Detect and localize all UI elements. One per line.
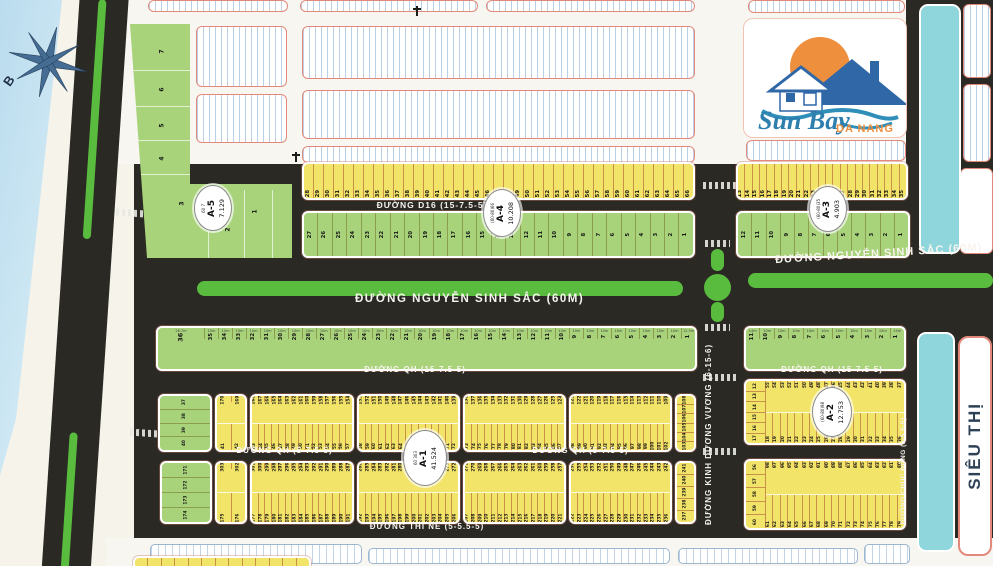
lot-cell: 33 [875, 413, 882, 444]
lot-cell: 32 [867, 413, 874, 444]
lot-number: 66 [804, 521, 808, 527]
strip-b2-4: 2562552542532522512502492482472462452442… [569, 461, 672, 524]
lot-cell: 62 [772, 495, 779, 528]
lot-cell: 251 [603, 463, 610, 469]
lot-number: 269 [479, 463, 483, 472]
lot-number: 20 [790, 190, 795, 197]
lot-cell: 199 [405, 493, 412, 522]
lot-cell: 57 [593, 164, 603, 198]
lot-number: 44 [466, 190, 471, 197]
block-c-val: 7.129 [218, 199, 226, 218]
lot-number: 31 [862, 436, 866, 442]
lot-number: 17 [768, 190, 773, 197]
lot-cell: 205 [445, 493, 452, 522]
lot-number: 290 [327, 463, 331, 472]
lot-number: 283 [380, 463, 384, 472]
lot-number: 3 [866, 335, 871, 339]
lot-number: 155 [340, 396, 344, 405]
lot-cell: 266 [497, 463, 504, 469]
lot-cell: 30 [323, 164, 333, 198]
lot-cell: 242 [663, 463, 670, 469]
lot-cell [135, 558, 147, 566]
lot-cell: 131 [511, 396, 518, 402]
lot-cell: 10m6 [817, 328, 831, 339]
crosswalk [705, 324, 730, 331]
lot-number: 141 [440, 396, 444, 405]
lot-number: 235 [658, 513, 662, 522]
lot-cell: 101 [657, 424, 664, 451]
lot-number: 22 [796, 436, 800, 442]
lot-number: 69 [826, 521, 830, 527]
lot-number: 29 [316, 190, 321, 197]
lot-cell: 10m14 [499, 328, 513, 339]
lot-cell: 219 [544, 493, 551, 522]
lot-number: 26 [323, 231, 328, 238]
lot-cell: 19 [419, 213, 433, 256]
strip-b1-3: 1381371361351341331321311301291281271261… [463, 394, 566, 452]
lot-cell: 10m7 [597, 328, 611, 339]
lot-number: 19 [783, 190, 788, 197]
block-c-id: A-4 [496, 205, 506, 222]
lot-cell: 230 [623, 493, 630, 522]
lot-cell: 63 [653, 164, 663, 198]
lot-number: 12 [742, 231, 747, 238]
roundabout [704, 274, 731, 301]
lot-number: 21 [395, 231, 400, 238]
lot-number: 187 [320, 513, 324, 522]
lot-number: 120 [592, 396, 596, 405]
lot-cell: 23 [802, 413, 809, 444]
lot-number: 35 [891, 436, 895, 442]
lot-number: 34 [893, 190, 898, 197]
lot-number: 273 [446, 463, 450, 472]
lot-number: 41 [222, 443, 226, 449]
block-circle-A-3: (60-80)35A-34.903 [809, 186, 847, 232]
lot-cell: 9 [563, 213, 577, 256]
lot-cell: 10m28 [302, 328, 316, 339]
lot-cell: 175 [217, 493, 231, 522]
power-pole-icon [295, 152, 297, 162]
lot-number: 57 [347, 443, 351, 449]
lot-cell [188, 558, 201, 566]
lot-number: 267 [492, 463, 496, 472]
lot-number: 20 [419, 333, 424, 340]
lot-number: 124 [559, 396, 563, 405]
lot-cell: 282 [385, 463, 392, 469]
lot-cell: 296 [285, 463, 292, 469]
lot-number: 195 [380, 513, 384, 522]
lot-number: 230 [625, 513, 629, 522]
lot-cell: 17 [447, 213, 461, 256]
lot-number: 204 [440, 513, 444, 522]
lot-cell: 10m8 [583, 328, 597, 339]
lot-number: 101 [658, 441, 662, 450]
lot-number: 2 [669, 233, 674, 237]
lot-cell: 66 [683, 164, 693, 198]
lot-cell: 1 [678, 213, 692, 256]
lot-number: 9 [574, 335, 579, 339]
block-c-val: 10.208 [507, 202, 515, 225]
lot-cell: 158 [318, 396, 325, 402]
lot-number: 184 [300, 513, 304, 522]
lot-number: 292 [313, 463, 317, 472]
lot-cell: 58 [603, 164, 613, 198]
lot-number: 119 [598, 396, 602, 405]
lot-number: 205 [446, 513, 450, 522]
lot-cell: 54 [772, 381, 779, 387]
lot-cell: 10m18 [443, 328, 457, 339]
strip-b2-colA: 303302175176 [215, 461, 247, 524]
lot-cell: 157 [325, 396, 332, 402]
lot-number: 36 [178, 333, 185, 342]
existing-block [302, 26, 695, 79]
lot-cell: 64 [663, 164, 673, 198]
lot-number: 298 [273, 463, 277, 472]
block-c-top: (60-80)66 [490, 203, 495, 223]
lot-number: 88 [840, 462, 844, 468]
lot-cell: 17 [746, 433, 765, 444]
existing-block [196, 26, 287, 87]
lot-cell: 112 [643, 396, 650, 402]
lot-cell: 165 [271, 396, 278, 402]
street-label-chuc-dong: ĐƯỜNG CHÚC ĐỘNG (5-5.5-5) [901, 388, 908, 553]
lot-number: 66 [686, 190, 691, 197]
lot-cell: 209 [477, 493, 484, 522]
lot-cell: 200 [411, 493, 418, 522]
lot-number: 63 [393, 443, 397, 449]
lot-cell: 197 [391, 493, 398, 522]
lot-number: 127 [539, 396, 543, 405]
lot-cell: 202 [425, 493, 432, 522]
lot-cell: 297 [278, 463, 285, 469]
block-c-id: A-3 [822, 201, 832, 218]
lot-number: 4 [856, 233, 861, 237]
lot-number: 264 [512, 463, 516, 472]
lot-number: 11 [546, 333, 551, 340]
street-label-qh15-west: ĐƯỜNG QH (15-7.5-5) [355, 366, 475, 374]
lot-cell: 244 [650, 463, 657, 469]
lot-number: 96 [782, 462, 786, 468]
lot-number: 203 [433, 513, 437, 522]
lot-cell: 132 [504, 396, 511, 402]
lot-cell: 272 [451, 463, 458, 469]
lot-cell: 149 [385, 396, 392, 402]
lot-cell: 211 [491, 493, 498, 522]
lot-cell: 56 [583, 164, 593, 198]
lot-number: 225 [592, 513, 596, 522]
lot-number: 65 [676, 190, 681, 197]
lot-dim: 10m [584, 329, 597, 333]
lot-cell: 116 [617, 396, 624, 402]
lot-cell: 191 [345, 493, 352, 522]
lot-number: 97 [774, 462, 778, 468]
lot-cell: 287 [345, 463, 352, 469]
lot-cell: 12 [738, 213, 751, 256]
compass-rose: B [2, 12, 94, 117]
lot-number: 59 [366, 443, 370, 449]
lot-dim: 10m [668, 329, 681, 333]
lot-number: 8 [582, 233, 587, 237]
lot-cell: 249 [617, 463, 624, 469]
lot-number: 8 [799, 233, 804, 237]
lot-cell: 44 [845, 381, 852, 387]
lot-cell: 14 [744, 164, 751, 198]
lot-cell: 34 [891, 164, 898, 198]
lot-cell: 10m32 [246, 328, 260, 339]
lot-number: 151 [373, 396, 377, 405]
lot-number: 145 [413, 396, 417, 405]
lot-number: 52 [546, 190, 551, 197]
lot-cell: 206 [451, 493, 458, 522]
lot-number: 1 [686, 335, 691, 339]
lot-cell: 110 [657, 396, 664, 402]
lot-number: 117 [612, 396, 616, 405]
block-c-top: (60-80)98 [820, 402, 825, 422]
lot-number: 168 [253, 396, 257, 405]
lot-number: 56 [586, 190, 591, 197]
lot-cell: 57 [746, 474, 765, 488]
lot-number: 285 [366, 463, 370, 472]
lot-number: 6 [611, 233, 616, 237]
lot-number: 16 [475, 333, 480, 340]
lot-number: 14 [746, 190, 751, 197]
lot-cell: 79 [504, 424, 511, 451]
lot-number: 84 [869, 462, 873, 468]
lot-number: 245 [645, 463, 649, 472]
lot-cell: 295 [291, 463, 298, 469]
lot-cell: 10m29 [288, 328, 302, 339]
lot-number: 208 [472, 513, 476, 522]
lot-cell: 64 [787, 495, 794, 528]
lot-cell: 245 [643, 463, 650, 469]
lot-cell: 10m34 [218, 328, 232, 339]
lot-cell: 185 [305, 493, 312, 522]
lot-number: 53 [556, 190, 561, 197]
lot-number: 78 [891, 521, 895, 527]
lot-number: 103 [683, 441, 687, 450]
lot-cell: 195 [378, 493, 385, 522]
lot-number: 242 [665, 463, 669, 472]
lot-cell: 36 [383, 164, 393, 198]
lot-cell: 70 [831, 495, 838, 528]
lot-number: 16 [467, 231, 472, 238]
lot-cell: 45 [473, 164, 483, 198]
lot-number: 197 [393, 513, 397, 522]
lot-number: 161 [300, 396, 304, 405]
lot-number: 24 [363, 333, 368, 340]
lot-cell: 10m3 [861, 328, 875, 339]
lot-number: 31 [265, 333, 270, 340]
lot-cell: 263 [517, 463, 524, 469]
lot-cell: 284 [371, 463, 378, 469]
lot-number: 284 [373, 463, 377, 472]
lot-number: 180 [273, 513, 277, 522]
lot-cell: 176 [231, 493, 246, 522]
lot-number: 58 [606, 190, 611, 197]
lot-number: 22 [805, 190, 810, 197]
lot-number: 260 [539, 463, 543, 472]
lot-cell: 10m4 [639, 328, 653, 339]
lot-cell: 291 [318, 463, 325, 469]
lot-number: 17 [452, 231, 457, 238]
lot-number: 10 [770, 231, 775, 238]
lot-cell: 159 [312, 396, 319, 402]
lot-cell: 190 [339, 493, 346, 522]
lot-cell: 213 [504, 493, 511, 522]
lot-dim: 10m [570, 329, 583, 333]
lot-number: 3 [658, 335, 663, 339]
block-c-top: 60 7 [201, 204, 206, 213]
lot-number: 85 [862, 462, 866, 468]
lot-cell: 289 [332, 463, 339, 469]
lot-number: 148 [393, 396, 397, 405]
lot-cell: 22 [375, 213, 389, 256]
lot-number: 94 [796, 462, 800, 468]
lot-number: 5 [842, 233, 847, 237]
lot-number: 45 [840, 382, 844, 388]
strip-br: 5657585960989796959493929190898887868584… [744, 459, 906, 530]
lot-cell: 162 [291, 396, 298, 402]
lot-cell: 122 [577, 396, 584, 402]
lot-cell: 20 [788, 164, 795, 198]
lot-cell: 81 [517, 424, 524, 451]
lot-number: 29 [293, 333, 298, 340]
lot-number: 16 [753, 425, 757, 431]
lot-number: 7 [813, 233, 818, 237]
lot-number: 37 [183, 399, 187, 405]
lot-cell: 11 [534, 213, 548, 256]
lot-number: 3 [179, 201, 186, 205]
lot-number: 15 [481, 231, 486, 238]
lot-number: 92 [811, 462, 815, 468]
lot-cell: 240 [677, 474, 694, 486]
lot-number: 1 [683, 233, 688, 237]
lot-cell: 299 [264, 463, 271, 469]
lot-cell: 290 [325, 463, 332, 469]
lot-cell: 264 [511, 463, 518, 469]
lot-number: 71 [446, 443, 450, 449]
lot-cell: 193 [365, 493, 372, 522]
lot-number: 8 [588, 335, 593, 339]
lot-cell: 255 [577, 463, 584, 469]
lot-cell: 22 [803, 164, 810, 198]
lot-number: 98 [638, 443, 642, 449]
lot-number: 212 [499, 513, 503, 522]
lot-number: 71 [840, 521, 844, 527]
lot-number: 33 [877, 436, 881, 442]
lot-cell: 182 [285, 493, 292, 522]
lot-cell: 93 [802, 461, 809, 467]
lot-cell: 10m6 [611, 328, 625, 339]
lot-cell: 10m26 [330, 328, 344, 339]
lot-number: 166 [266, 396, 270, 405]
lot-number: 19 [424, 231, 429, 238]
lot-cell: 107 [677, 404, 694, 413]
lot-number: 114 [632, 396, 636, 405]
lot-number: 32 [878, 190, 883, 197]
lot-number: 2 [672, 335, 677, 339]
lot-number: 95 [789, 462, 793, 468]
lot-number: 139 [453, 396, 457, 405]
lot-number: 98 [767, 462, 771, 468]
lot-cell: 71 [445, 424, 452, 451]
lot-cell: 10m30 [274, 328, 288, 339]
lot-cell: 257 [557, 463, 564, 469]
lot-number: 188 [327, 513, 331, 522]
lot-cell: 15 [746, 412, 765, 423]
lot-number: 282 [386, 463, 390, 472]
lot-number: 48 [818, 382, 822, 388]
master-plan-map: 7654321 28293031323334353637383940414243… [0, 0, 993, 566]
lot-cell: 151 [371, 396, 378, 402]
lot-number: 32 [869, 436, 873, 442]
lot-cell: 84 [867, 461, 874, 467]
lot-number: 32 [251, 333, 256, 340]
lot-number: 12 [532, 333, 537, 340]
lot-number: 65 [796, 521, 800, 527]
lot-number: 261 [532, 463, 536, 472]
lot-number: 42 [446, 190, 451, 197]
lot-cell: 29 [313, 164, 323, 198]
lot-cell: 144 [418, 396, 425, 402]
lot-number: 146 [406, 396, 410, 405]
lot-cell: 160 [305, 396, 312, 402]
lot-cell: 10m13 [513, 328, 527, 339]
lot-cell: 232 [637, 493, 644, 522]
lot-number: 50 [804, 382, 808, 388]
lot-number: 241 [683, 464, 687, 473]
lot-number: 136 [479, 396, 483, 405]
lot-cell: 38 [403, 164, 413, 198]
lot-number: 51 [536, 190, 541, 197]
lot-cell: 104 [677, 432, 694, 441]
lot-cell: 28 [847, 164, 854, 198]
lot-number: 26 [335, 333, 340, 340]
lot-number: 93 [804, 462, 808, 468]
lot-cell: 73 [853, 495, 860, 528]
lot-number: 19 [433, 333, 438, 340]
lot-cell: 283 [378, 463, 385, 469]
strip-b2-1: 3013002992982972962952942932922912902892… [250, 461, 354, 524]
lot-cell: 12 [520, 213, 534, 256]
lot-number: 40 [877, 382, 881, 388]
lot-cell: 119 [597, 396, 604, 402]
lot-number: 42 [862, 382, 866, 388]
lot-cell: 44 [463, 164, 473, 198]
lot-cell: 2 [664, 213, 678, 256]
lot-number: 226 [598, 513, 602, 522]
lot-number: 62 [386, 443, 390, 449]
lot-number: 86 [855, 462, 859, 468]
lot-number: 57 [753, 478, 757, 484]
lot-cell: 260 [537, 463, 544, 469]
lot-cell: 54 [563, 164, 573, 198]
lot-cell: 129 [524, 396, 531, 402]
lot-number: 11 [750, 333, 755, 340]
lot-cell: 133 [497, 396, 504, 402]
lot-cell: 10m25 [344, 328, 358, 339]
lot-cell: 37 [160, 396, 210, 409]
lot-cell: 267 [491, 463, 498, 469]
lot-number: 234 [652, 513, 656, 522]
lot-number: 11 [756, 231, 761, 238]
lot-cell: 50 [802, 381, 809, 387]
lot-number: 91 [818, 462, 822, 468]
lot-number: 54 [566, 190, 571, 197]
lot-cell: 75 [477, 424, 484, 451]
lot-number: 258 [552, 463, 556, 472]
lot-number: 299 [266, 463, 270, 472]
